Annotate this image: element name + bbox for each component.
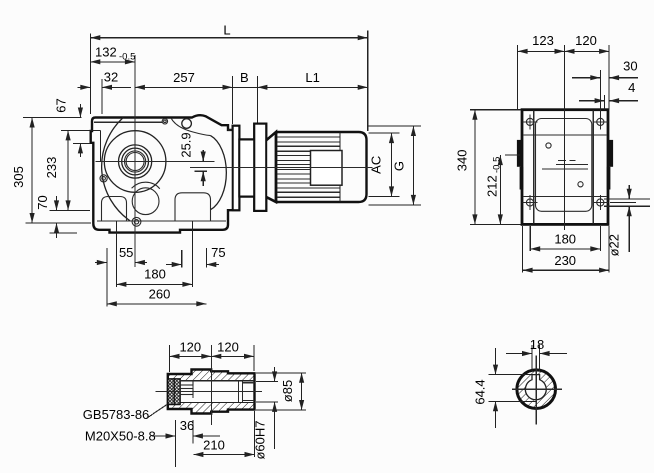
svg-text:210: 210 (203, 437, 225, 452)
svg-text:120: 120 (179, 340, 201, 355)
svg-text:L: L (223, 22, 230, 37)
svg-text:230: 230 (554, 253, 576, 268)
svg-text:30: 30 (623, 59, 637, 74)
svg-text:ø22: ø22 (606, 234, 621, 256)
svg-text:18: 18 (530, 337, 544, 352)
svg-text:M20X50-8.8: M20X50-8.8 (85, 429, 156, 444)
svg-text:70: 70 (35, 195, 50, 209)
svg-text:ø60H7: ø60H7 (253, 420, 268, 459)
svg-text:G: G (392, 161, 407, 171)
svg-text:64.4: 64.4 (473, 379, 488, 404)
svg-text:75: 75 (211, 245, 225, 260)
svg-text:212: 212 (485, 175, 500, 197)
svg-text:GB5783-86: GB5783-86 (83, 407, 150, 422)
svg-text:120: 120 (575, 33, 597, 48)
svg-text:340: 340 (455, 150, 470, 172)
svg-text:180: 180 (554, 232, 576, 247)
svg-text:B: B (240, 70, 249, 85)
svg-text:55: 55 (119, 245, 133, 260)
svg-text:AC: AC (369, 156, 384, 174)
svg-text:120: 120 (217, 340, 239, 355)
svg-text:233: 233 (44, 157, 59, 179)
svg-text:132: 132 (95, 45, 117, 60)
svg-text:32: 32 (104, 69, 118, 84)
svg-text:257: 257 (173, 70, 195, 85)
svg-text:305: 305 (11, 166, 26, 188)
svg-text:123: 123 (532, 33, 554, 48)
svg-text:L1: L1 (305, 70, 319, 85)
svg-text:67: 67 (54, 98, 69, 112)
svg-text:4: 4 (628, 80, 635, 95)
svg-text:ø85: ø85 (280, 380, 295, 402)
svg-text:180: 180 (144, 266, 166, 281)
svg-text:36: 36 (180, 418, 194, 433)
svg-text:260: 260 (149, 286, 171, 301)
svg-text:-0.5: -0.5 (119, 52, 135, 63)
svg-text:25.9: 25.9 (179, 132, 194, 157)
svg-text:-0.5: -0.5 (492, 157, 503, 173)
